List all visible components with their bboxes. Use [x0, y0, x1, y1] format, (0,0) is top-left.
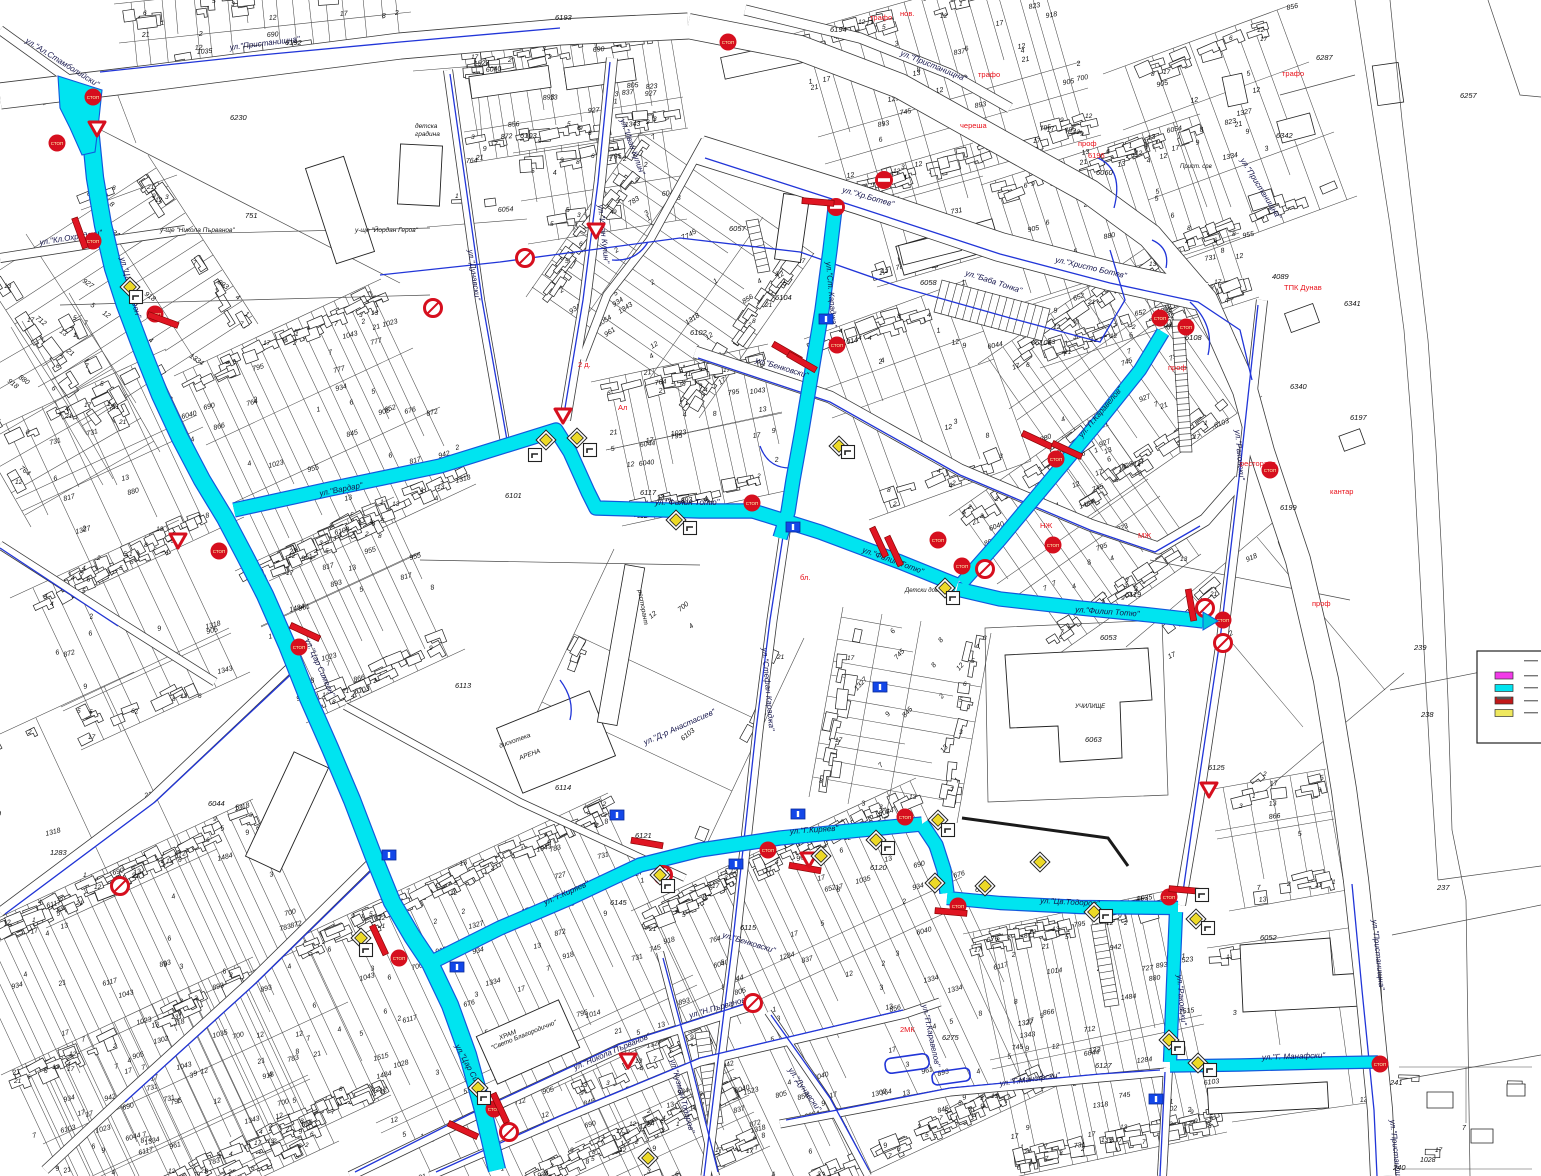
svg-text:4: 4 — [67, 1061, 71, 1068]
svg-text:17: 17 — [1193, 434, 1201, 441]
svg-text:866: 866 — [1042, 1009, 1055, 1017]
svg-text:5: 5 — [123, 551, 127, 558]
svg-text:2: 2 — [1131, 324, 1136, 331]
svg-text:12: 12 — [168, 1168, 176, 1175]
svg-text:4: 4 — [65, 406, 69, 413]
svg-text:13: 13 — [1268, 800, 1277, 808]
svg-text:1: 1 — [83, 872, 87, 879]
svg-text:1: 1 — [1252, 793, 1256, 800]
svg-text:6125: 6125 — [1208, 763, 1226, 772]
svg-text:13: 13 — [635, 1058, 643, 1065]
svg-text:690: 690 — [593, 46, 605, 54]
svg-text:СТОП: СТОП — [899, 815, 911, 820]
svg-text:1: 1 — [32, 917, 36, 924]
svg-text:трафо: трафо — [1282, 69, 1304, 78]
svg-text:СТОП: СТОП — [213, 549, 225, 554]
svg-text:СТОП: СТОП — [293, 645, 305, 650]
svg-text:8: 8 — [1187, 225, 1191, 232]
svg-text:795: 795 — [670, 433, 683, 441]
svg-text:5: 5 — [565, 258, 569, 265]
svg-text:6341: 6341 — [1344, 299, 1361, 308]
svg-text:1283: 1283 — [50, 848, 68, 857]
svg-text:СТОП: СТОП — [1047, 543, 1059, 548]
svg-text:17: 17 — [107, 571, 115, 578]
svg-text:3: 3 — [298, 1143, 302, 1150]
svg-text:5: 5 — [119, 565, 123, 572]
svg-text:8: 8 — [897, 313, 901, 320]
svg-text:21: 21 — [1040, 943, 1050, 951]
svg-text:12: 12 — [94, 884, 102, 891]
svg-text:1: 1 — [959, 1, 963, 8]
svg-text:8: 8 — [752, 318, 756, 325]
svg-text:880: 880 — [1148, 975, 1161, 983]
svg-text:3: 3 — [1059, 1150, 1063, 1157]
svg-text:866: 866 — [1268, 813, 1280, 821]
svg-text:12: 12 — [1235, 253, 1244, 261]
svg-text:3: 3 — [1233, 1010, 1238, 1017]
svg-text:6342: 6342 — [1276, 131, 1294, 140]
svg-text:4: 4 — [259, 1129, 263, 1136]
svg-text:5: 5 — [454, 880, 458, 887]
svg-text:2: 2 — [979, 513, 984, 520]
svg-text:6: 6 — [579, 241, 583, 248]
svg-text:17: 17 — [263, 340, 271, 347]
svg-text:7: 7 — [80, 572, 84, 579]
svg-text:СТОП: СТОП — [87, 239, 99, 244]
svg-text:7: 7 — [1142, 1139, 1146, 1146]
svg-text:2: 2 — [892, 501, 897, 508]
svg-text:6106: 6106 — [1035, 338, 1053, 347]
svg-text:2: 2 — [364, 531, 369, 538]
svg-text:6115: 6115 — [740, 923, 757, 932]
svg-text:1: 1 — [295, 331, 299, 338]
svg-text:12: 12 — [881, 268, 889, 275]
svg-text:6340: 6340 — [1290, 382, 1308, 391]
svg-text:4: 4 — [839, 328, 843, 335]
svg-text:238: 238 — [1420, 710, 1434, 719]
svg-text:4: 4 — [229, 1151, 233, 1158]
svg-text:712: 712 — [1083, 1026, 1096, 1034]
svg-text:2: 2 — [1123, 920, 1128, 927]
svg-text:9: 9 — [1031, 181, 1035, 188]
svg-text:17: 17 — [286, 570, 294, 577]
svg-text:6192: 6192 — [285, 38, 303, 47]
svg-text:9: 9 — [213, 816, 217, 823]
svg-text:2: 2 — [112, 1043, 117, 1050]
svg-text:9: 9 — [570, 1147, 574, 1154]
svg-text:3: 3 — [165, 194, 169, 201]
svg-text:9: 9 — [249, 812, 253, 819]
svg-text:6287: 6287 — [1316, 53, 1334, 62]
svg-text:5: 5 — [550, 221, 554, 228]
svg-text:бл.: бл. — [800, 573, 810, 582]
svg-text:4: 4 — [927, 312, 931, 319]
svg-text:4: 4 — [610, 209, 614, 216]
svg-text:6: 6 — [206, 837, 210, 844]
svg-text:893: 893 — [1155, 962, 1168, 970]
svg-text:4: 4 — [50, 601, 54, 608]
svg-text:3: 3 — [724, 875, 728, 882]
svg-text:6053: 6053 — [1100, 633, 1118, 642]
svg-text:13: 13 — [1120, 1124, 1128, 1131]
svg-text:5: 5 — [531, 168, 535, 175]
svg-text:8: 8 — [378, 533, 382, 540]
svg-text:3: 3 — [471, 134, 475, 141]
svg-text:СТОП: СТОП — [1217, 618, 1229, 623]
svg-text:12: 12 — [69, 1051, 77, 1058]
svg-text:13: 13 — [1117, 161, 1126, 169]
svg-text:6199: 6199 — [1280, 503, 1298, 512]
svg-text:9: 9 — [280, 0, 284, 2]
svg-text:СТОП: СТОП — [831, 343, 843, 348]
svg-text:2: 2 — [27, 729, 32, 736]
svg-text:3: 3 — [959, 729, 963, 736]
svg-text:13: 13 — [156, 526, 164, 533]
svg-text:5: 5 — [882, 24, 886, 31]
svg-text:6: 6 — [251, 1165, 255, 1172]
svg-text:12: 12 — [629, 1121, 637, 1128]
svg-text:676: 676 — [986, 936, 999, 944]
svg-text:5: 5 — [212, 0, 216, 5]
svg-text:12: 12 — [155, 197, 163, 204]
svg-text:13: 13 — [437, 484, 445, 491]
svg-text:927: 927 — [645, 90, 658, 98]
svg-text:13: 13 — [758, 406, 767, 414]
svg-text:6196: 6196 — [1088, 151, 1105, 160]
svg-text:8: 8 — [1207, 1120, 1211, 1127]
svg-text:12: 12 — [914, 161, 923, 169]
svg-text:12: 12 — [269, 14, 277, 22]
svg-text:6103: 6103 — [520, 131, 538, 140]
svg-text:6117: 6117 — [640, 488, 657, 497]
svg-text:6054: 6054 — [498, 206, 514, 214]
svg-text:7: 7 — [193, 260, 197, 267]
svg-text:751: 751 — [245, 211, 258, 220]
svg-text:13: 13 — [580, 1082, 588, 1089]
svg-text:4: 4 — [704, 387, 708, 394]
svg-text:4: 4 — [868, 335, 872, 342]
svg-text:5: 5 — [566, 207, 571, 214]
svg-text:2: 2 — [622, 156, 628, 163]
svg-text:241: 241 — [1389, 1078, 1403, 1087]
svg-text:2: 2 — [547, 54, 552, 61]
svg-text:4089: 4089 — [1272, 272, 1290, 281]
svg-text:9: 9 — [483, 146, 488, 153]
svg-text:6194: 6194 — [830, 25, 847, 34]
svg-text:17: 17 — [974, 947, 982, 954]
svg-text:5: 5 — [958, 1100, 962, 1107]
svg-text:12: 12 — [619, 1147, 627, 1154]
svg-text:12: 12 — [1257, 27, 1265, 34]
svg-text:Ал: Ал — [618, 403, 627, 412]
svg-text:ул."Филип Тотю": ул."Филип Тотю" — [654, 498, 721, 507]
svg-text:СТОП: СТОП — [1050, 457, 1062, 462]
svg-text:7: 7 — [888, 1153, 892, 1160]
svg-text:8: 8 — [592, 1149, 596, 1156]
svg-text:3: 3 — [647, 1168, 651, 1175]
svg-text:2: 2 — [1186, 1107, 1192, 1115]
svg-text:6113: 6113 — [455, 681, 472, 690]
svg-text:7: 7 — [334, 321, 338, 328]
svg-text:Детски дом: Детски дом — [904, 588, 939, 594]
svg-text:у-ще "Никола Първанов": у-ще "Никола Първанов" — [159, 227, 235, 234]
svg-text:795: 795 — [610, 153, 622, 161]
svg-text:9: 9 — [626, 1129, 630, 1136]
svg-text:4: 4 — [165, 549, 169, 556]
svg-text:у-ще "Йордан Геров": у-ще "Йордан Геров" — [354, 225, 419, 234]
svg-text:2: 2 — [967, 504, 972, 511]
svg-text:6275: 6275 — [942, 1033, 960, 1042]
svg-text:5: 5 — [971, 658, 975, 665]
svg-text:6104: 6104 — [775, 293, 792, 302]
svg-text:проф: проф — [1312, 599, 1331, 608]
svg-text:3: 3 — [594, 822, 598, 829]
svg-text:6: 6 — [130, 559, 134, 566]
svg-text:9: 9 — [351, 913, 355, 920]
svg-text:21: 21 — [75, 900, 84, 907]
svg-text:2: 2 — [773, 457, 779, 465]
svg-text:13: 13 — [392, 501, 400, 508]
svg-text:7: 7 — [84, 320, 88, 327]
svg-text:12: 12 — [378, 915, 386, 922]
svg-text:7: 7 — [494, 141, 498, 148]
svg-text:6: 6 — [1229, 35, 1233, 42]
svg-text:1: 1 — [420, 487, 424, 494]
svg-text:7: 7 — [1113, 323, 1117, 330]
svg-text:6101: 6101 — [505, 491, 522, 500]
svg-text:трафо: трафо — [978, 70, 1000, 79]
svg-text:3: 3 — [229, 972, 233, 979]
svg-text:4: 4 — [858, 335, 862, 342]
svg-text:6058: 6058 — [920, 278, 938, 287]
svg-text:УЧИЛИЩЕ: УЧИЛИЩЕ — [1074, 704, 1106, 710]
svg-text:3: 3 — [577, 212, 581, 219]
svg-text:2 д.: 2 д. — [578, 360, 591, 369]
svg-text:2МК: 2МК — [900, 1025, 915, 1034]
svg-text:8: 8 — [382, 13, 386, 20]
svg-text:СТОП: СТОП — [956, 564, 968, 569]
svg-text:6: 6 — [591, 153, 595, 160]
svg-text:21: 21 — [683, 371, 692, 378]
svg-text:6120: 6120 — [870, 863, 888, 872]
svg-text:1: 1 — [1204, 420, 1208, 427]
svg-text:СТОП: СТОП — [51, 141, 63, 146]
svg-text:6044: 6044 — [208, 799, 225, 808]
svg-text:6230: 6230 — [230, 113, 248, 122]
svg-text:872: 872 — [501, 133, 513, 141]
svg-text:12: 12 — [1051, 1043, 1060, 1051]
svg-text:2: 2 — [1262, 771, 1267, 778]
svg-text:СТОП: СТОП — [1163, 895, 1175, 900]
svg-text:6063: 6063 — [1085, 735, 1103, 744]
svg-text:3: 3 — [897, 1146, 901, 1153]
svg-text:7: 7 — [85, 363, 89, 370]
svg-text:нов.: нов. — [900, 9, 914, 18]
svg-text:2: 2 — [394, 10, 399, 17]
svg-text:6: 6 — [198, 693, 202, 700]
svg-text:7: 7 — [240, 321, 244, 328]
svg-text:17: 17 — [616, 1128, 624, 1135]
svg-text:6: 6 — [963, 681, 967, 688]
svg-text:6: 6 — [675, 1171, 679, 1176]
svg-text:1: 1 — [676, 1121, 680, 1128]
svg-text:4: 4 — [1185, 239, 1189, 246]
svg-text:13: 13 — [1258, 896, 1267, 904]
svg-text:2: 2 — [645, 119, 650, 126]
svg-text:837: 837 — [622, 89, 635, 97]
svg-text:12: 12 — [288, 553, 296, 560]
svg-text:8: 8 — [576, 159, 580, 166]
svg-text:трафо: трафо — [870, 13, 892, 22]
svg-text:1: 1 — [1332, 879, 1336, 886]
svg-text:3: 3 — [606, 1080, 610, 1087]
svg-text:череша: череша — [960, 121, 987, 130]
svg-text:6119: 6119 — [1125, 590, 1142, 599]
svg-text:927: 927 — [588, 107, 601, 115]
svg-text:21: 21 — [608, 429, 618, 437]
svg-text:795: 795 — [1073, 921, 1086, 929]
svg-text:13: 13 — [371, 310, 379, 317]
svg-text:7: 7 — [939, 1115, 943, 1122]
svg-text:21: 21 — [764, 302, 773, 309]
svg-text:17: 17 — [835, 737, 843, 744]
svg-text:СТОП: СТОП — [393, 956, 405, 961]
svg-text:17: 17 — [1033, 138, 1041, 145]
svg-text:6: 6 — [44, 1068, 48, 1075]
svg-text:СТОП: СТОП — [762, 848, 774, 853]
svg-text:823: 823 — [646, 83, 658, 91]
svg-text:Прист. срв: Прист. срв — [1180, 164, 1212, 170]
svg-text:237: 237 — [1436, 883, 1450, 892]
svg-text:проф: проф — [1168, 363, 1187, 372]
svg-text:745: 745 — [1011, 1044, 1024, 1052]
svg-text:6: 6 — [577, 125, 581, 132]
svg-text:7: 7 — [950, 787, 954, 794]
svg-text:17: 17 — [84, 402, 92, 409]
svg-text:3: 3 — [999, 453, 1003, 460]
svg-text:12: 12 — [15, 479, 23, 486]
svg-text:6114: 6114 — [555, 783, 571, 792]
svg-text:6: 6 — [310, 1131, 314, 1138]
svg-text:8: 8 — [339, 1086, 343, 1093]
svg-text:7: 7 — [563, 272, 567, 279]
svg-text:17: 17 — [88, 734, 96, 741]
svg-text:1: 1 — [129, 551, 133, 558]
svg-text:3: 3 — [653, 116, 657, 123]
svg-text:21: 21 — [642, 369, 652, 377]
svg-text:3: 3 — [817, 1171, 821, 1176]
svg-text:2: 2 — [1010, 952, 1016, 960]
svg-text:6: 6 — [143, 10, 147, 17]
svg-text:8: 8 — [1232, 231, 1236, 238]
svg-text:12: 12 — [1029, 929, 1037, 936]
svg-text:СТОП: СТОП — [952, 904, 964, 909]
svg-text:6127: 6127 — [1095, 1061, 1113, 1070]
svg-text:12: 12 — [195, 44, 203, 52]
svg-text:СТОП: СТОП — [1374, 1062, 1386, 1067]
svg-text:4: 4 — [71, 575, 75, 582]
svg-text:НЖ: НЖ — [1040, 521, 1052, 530]
svg-text:7: 7 — [1063, 351, 1067, 358]
svg-text:9: 9 — [26, 429, 30, 436]
svg-text:ТПК Дунав: ТПК Дунав — [1284, 283, 1322, 292]
svg-text:СТОП: СТОП — [746, 501, 758, 506]
svg-text:8: 8 — [1151, 71, 1155, 78]
svg-text:МЖ: МЖ — [1138, 531, 1151, 540]
svg-text:5: 5 — [1065, 934, 1069, 941]
svg-text:13: 13 — [4, 283, 12, 290]
svg-text:8: 8 — [112, 185, 116, 192]
svg-text:5: 5 — [100, 381, 104, 388]
svg-text:6: 6 — [1026, 362, 1030, 369]
svg-text:21: 21 — [118, 419, 127, 426]
svg-text:9: 9 — [1194, 1118, 1198, 1125]
svg-text:764: 764 — [654, 379, 667, 387]
svg-text:2: 2 — [1286, 881, 1291, 888]
svg-text:6145: 6145 — [610, 898, 628, 907]
svg-text:6197: 6197 — [1350, 413, 1368, 422]
svg-text:5: 5 — [369, 911, 373, 918]
svg-text:17: 17 — [254, 1140, 262, 1147]
svg-text:СТОП: СТОП — [1180, 325, 1192, 330]
svg-text:893: 893 — [543, 94, 555, 102]
svg-text:764: 764 — [466, 157, 478, 165]
svg-text:5: 5 — [925, 1132, 929, 1139]
svg-text:17: 17 — [847, 655, 855, 662]
svg-text:2: 2 — [198, 31, 203, 38]
svg-text:7: 7 — [331, 1109, 335, 1116]
svg-text:2: 2 — [1108, 1138, 1113, 1145]
svg-text:градина: градина — [415, 130, 440, 138]
svg-text:21: 21 — [1087, 299, 1096, 306]
svg-text:4: 4 — [775, 859, 779, 866]
svg-text:детска: детска — [415, 122, 438, 130]
svg-text:4: 4 — [491, 866, 495, 873]
svg-text:проф: проф — [1078, 139, 1097, 148]
svg-text:6060: 6060 — [1096, 168, 1114, 177]
svg-text:21: 21 — [13, 1078, 22, 1085]
svg-text:6: 6 — [709, 885, 713, 892]
svg-text:5: 5 — [73, 315, 77, 322]
svg-text:17: 17 — [1163, 69, 1171, 76]
svg-text:13: 13 — [1052, 926, 1060, 933]
svg-text:12: 12 — [1159, 153, 1168, 161]
svg-text:СТОП: СТОП — [932, 538, 944, 543]
svg-text:6: 6 — [56, 363, 60, 370]
svg-text:17: 17 — [715, 1147, 723, 1154]
svg-text:5: 5 — [567, 121, 571, 128]
svg-text:856: 856 — [508, 121, 520, 129]
svg-text:3: 3 — [980, 1095, 984, 1102]
svg-text:СТОП: СТОП — [87, 95, 99, 100]
svg-text:5: 5 — [1106, 149, 1110, 156]
svg-text:8: 8 — [332, 699, 336, 706]
svg-text:731: 731 — [1073, 1142, 1086, 1150]
svg-text:1028: 1028 — [1420, 1157, 1436, 1164]
svg-text:6193: 6193 — [555, 13, 573, 22]
svg-text:21: 21 — [141, 31, 150, 39]
svg-text:745: 745 — [1118, 1092, 1131, 1100]
svg-text:21: 21 — [1209, 591, 1218, 598]
svg-text:6057: 6057 — [729, 224, 747, 233]
svg-text:5: 5 — [381, 518, 385, 525]
svg-text:1: 1 — [373, 678, 377, 685]
svg-text:12: 12 — [893, 168, 901, 175]
svg-text:9: 9 — [635, 177, 639, 184]
svg-text:5: 5 — [77, 708, 81, 715]
svg-text:17: 17 — [746, 1148, 754, 1155]
svg-text:12: 12 — [940, 13, 948, 20]
